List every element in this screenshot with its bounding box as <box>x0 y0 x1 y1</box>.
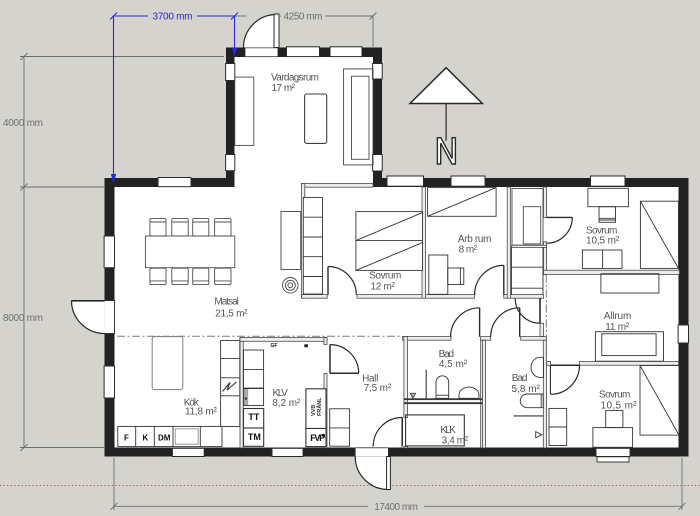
svg-text:11 m²: 11 m² <box>605 322 630 333</box>
svg-text:FVP: FVP <box>310 433 325 443</box>
svg-text:17400 mm: 17400 mm <box>374 502 418 513</box>
svg-text:FRÅNL: FRÅNL <box>316 397 323 416</box>
svg-text:4000 mm: 4000 mm <box>3 118 43 129</box>
svg-text:21,5 m²: 21,5 m² <box>215 308 248 319</box>
svg-text:TT: TT <box>248 412 259 422</box>
svg-text:17 m²: 17 m² <box>272 83 296 94</box>
svg-text:4250 mm: 4250 mm <box>284 12 323 23</box>
svg-text:Sovrum: Sovrum <box>599 390 631 401</box>
svg-text:5,8 m²: 5,8 m² <box>512 384 541 395</box>
svg-text:GF: GF <box>271 343 278 349</box>
svg-text:10,5 m²: 10,5 m² <box>586 236 620 247</box>
svg-text:3700 mm: 3700 mm <box>153 12 193 23</box>
svg-text:TM: TM <box>248 432 261 442</box>
svg-text:Allrum: Allrum <box>604 311 632 322</box>
svg-text:Matsal: Matsal <box>214 297 239 308</box>
svg-text:3,4 m²: 3,4 m² <box>442 435 469 446</box>
svg-text:DM: DM <box>158 434 171 443</box>
svg-text:K: K <box>143 434 149 443</box>
svg-text:8000 mm: 8000 mm <box>3 313 43 324</box>
svg-text:7,5 m²: 7,5 m² <box>364 383 392 394</box>
svg-text:12 m²: 12 m² <box>371 282 396 293</box>
svg-text:Vardagsrum: Vardagsrum <box>271 73 319 84</box>
svg-text:F: F <box>124 434 129 443</box>
svg-text:Sovrum: Sovrum <box>369 271 401 282</box>
svg-text:8 m²: 8 m² <box>459 245 478 256</box>
svg-text:11,8 m²: 11,8 m² <box>185 407 217 418</box>
svg-text:4,5 m²: 4,5 m² <box>439 359 468 370</box>
svg-text:8,2 m²: 8,2 m² <box>272 398 301 409</box>
svg-text:Bad: Bad <box>512 373 528 384</box>
svg-text:Arb rum: Arb rum <box>458 234 492 245</box>
svg-text:10,5 m²: 10,5 m² <box>601 401 638 412</box>
